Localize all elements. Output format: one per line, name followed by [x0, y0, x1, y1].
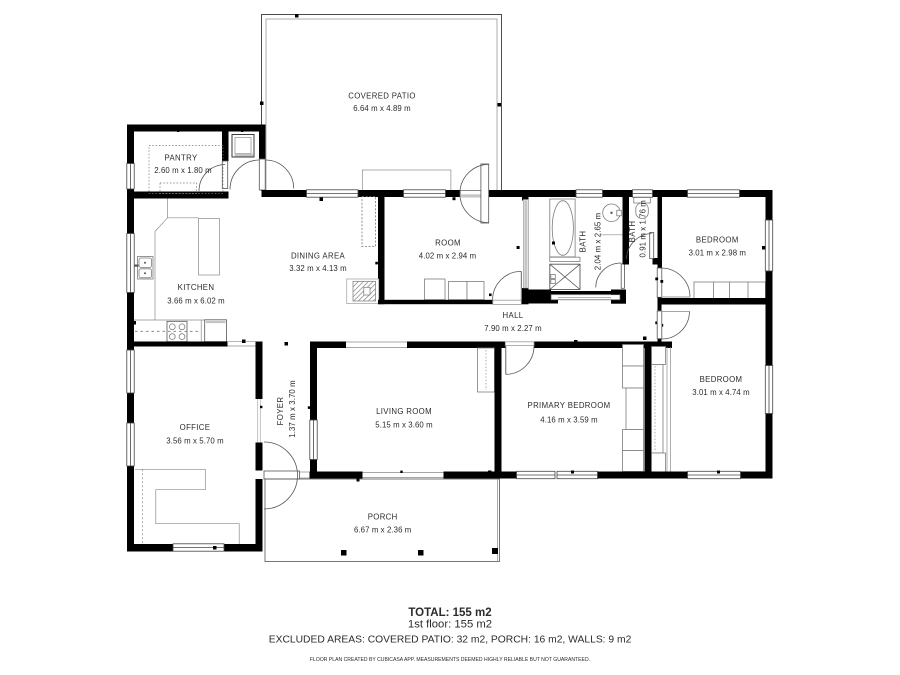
svg-text:PRIMARY BEDROOM: PRIMARY BEDROOM — [528, 401, 611, 410]
svg-text:LIVING ROOM: LIVING ROOM — [376, 407, 432, 416]
svg-text:2.60 m x 1.80 m: 2.60 m x 1.80 m — [154, 166, 211, 175]
svg-text:BATH: BATH — [628, 221, 637, 243]
svg-text:ROOM: ROOM — [435, 239, 461, 248]
svg-text:TOTAL: 155 m2: TOTAL: 155 m2 — [408, 607, 491, 619]
svg-text:7.90 m x 2.27 m: 7.90 m x 2.27 m — [484, 324, 541, 333]
svg-text:COVERED PATIO: COVERED PATIO — [348, 92, 416, 101]
svg-text:6.64 m x 4.89 m: 6.64 m x 4.89 m — [353, 104, 410, 113]
svg-text:1st floor: 155 m2: 1st floor: 155 m2 — [408, 619, 492, 631]
svg-text:3.01 m x 2.98 m: 3.01 m x 2.98 m — [689, 249, 746, 258]
svg-text:4.02 m x 2.94 m: 4.02 m x 2.94 m — [419, 251, 476, 260]
svg-text:3.56 m x 5.70 m: 3.56 m x 5.70 m — [166, 437, 223, 446]
svg-text:1.37 m x 3.70 m: 1.37 m x 3.70 m — [288, 380, 297, 437]
svg-text:EXCLUDED AREAS: COVERED PATIO:: EXCLUDED AREAS: COVERED PATIO: 32 m2, PO… — [269, 635, 632, 646]
svg-text:BEDROOM: BEDROOM — [700, 375, 743, 384]
svg-text:3.01 m x 4.74 m: 3.01 m x 4.74 m — [692, 388, 749, 397]
svg-text:BEDROOM: BEDROOM — [696, 236, 739, 245]
svg-text:3.66 m x 6.02 m: 3.66 m x 6.02 m — [167, 296, 224, 305]
svg-text:2.04 m x 2.65 m: 2.04 m x 2.65 m — [594, 213, 603, 270]
svg-text:FOYER: FOYER — [276, 397, 285, 426]
svg-text:HALL: HALL — [503, 311, 524, 320]
svg-text:3.32 m x 4.13 m: 3.32 m x 4.13 m — [289, 264, 346, 273]
svg-text:OFFICE: OFFICE — [180, 423, 211, 432]
svg-text:KITCHEN: KITCHEN — [178, 283, 215, 292]
svg-text:4.16 m x 3.59 m: 4.16 m x 3.59 m — [540, 416, 597, 425]
svg-text:0.91 m x 1.76 m: 0.91 m x 1.76 m — [639, 200, 648, 257]
svg-text:PORCH: PORCH — [368, 513, 398, 522]
svg-text:BATH: BATH — [579, 231, 588, 253]
svg-text:PANTRY: PANTRY — [164, 154, 197, 163]
svg-text:5.15 m x 3.60 m: 5.15 m x 3.60 m — [375, 421, 432, 430]
svg-text:6.67 m x 2.36 m: 6.67 m x 2.36 m — [354, 526, 411, 535]
svg-text:DINING AREA: DINING AREA — [291, 252, 346, 261]
svg-text:FLOOR PLAN CREATED BY CUBICASA: FLOOR PLAN CREATED BY CUBICASA APP. MEAS… — [310, 657, 590, 663]
